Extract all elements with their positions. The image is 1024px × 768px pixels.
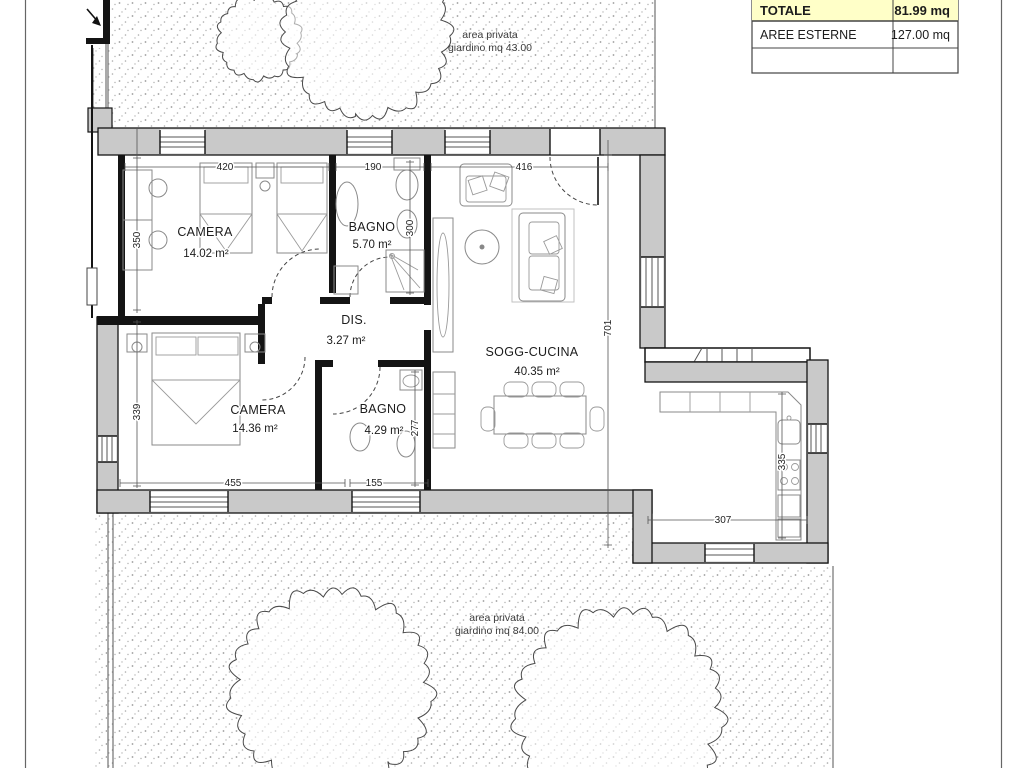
bottom-garden-label-line1: area privata — [469, 612, 525, 624]
nightstand — [256, 163, 274, 178]
dim-bagno1-width: 190 — [365, 162, 382, 173]
window — [808, 424, 827, 453]
dim-camera1-height: 350 — [132, 231, 143, 248]
window — [150, 491, 228, 512]
washing-machine — [334, 266, 358, 294]
dimension-lines: 420 190 416 350 339 300 701 455 155 277 … — [120, 128, 807, 548]
room-label-bagno2: BAGNO — [360, 402, 407, 416]
door-arc-camera2 — [262, 357, 305, 400]
interior-walls — [97, 155, 431, 490]
dim-camera2-height: 339 — [132, 403, 143, 420]
summary-row-totale-label: TOTALE — [760, 3, 811, 18]
summary-table: TOTALE 81.99 mq AREE ESTERNE 127.00 mq — [752, 0, 958, 73]
summary-row-totale-value: 81.99 mq — [894, 3, 950, 18]
armchair — [460, 164, 512, 206]
shower — [386, 250, 424, 292]
room-area-bagno1: 5.70 m² — [353, 239, 392, 251]
door-arc-camera1 — [272, 249, 320, 297]
window — [160, 130, 205, 155]
window — [641, 257, 664, 307]
dim-bagno2-width: 155 — [366, 478, 383, 489]
room-label-dis: DIS. — [341, 313, 367, 327]
dim-camera2-width: 455 — [225, 478, 242, 489]
window — [352, 491, 420, 512]
room-label-bagno1: BAGNO — [349, 220, 396, 234]
room-area-camera1: 14.02 m² — [183, 248, 229, 260]
room-label-camera2: CAMERA — [230, 403, 286, 417]
toilet — [396, 170, 418, 200]
window — [705, 544, 754, 562]
single-bed — [277, 163, 327, 253]
kitchen-unit — [778, 495, 800, 517]
soggiorno-furniture — [433, 164, 604, 448]
single-bed — [200, 163, 252, 253]
room-label-camera1: CAMERA — [177, 225, 233, 239]
window — [98, 436, 117, 462]
lamp — [260, 181, 270, 191]
dim-kitchen-height: 335 — [777, 453, 788, 470]
room-label-soggiorno: SOGG-CUCINA — [486, 345, 579, 359]
double-bed — [152, 333, 240, 445]
sofa — [519, 213, 565, 301]
summary-row-esterne-value: 127.00 mq — [891, 28, 950, 42]
entry-opening — [550, 129, 600, 155]
kitchen-unit — [778, 519, 800, 537]
kitchen-north-wall — [645, 348, 810, 362]
window — [445, 130, 490, 155]
cabinet — [433, 218, 453, 352]
kitchen-sink — [778, 416, 800, 444]
room-area-camera2: 14.36 m² — [232, 423, 278, 435]
dim-soggiorno-height: 701 — [603, 319, 614, 336]
door-arc-bagno1 — [350, 257, 390, 297]
dim-soggiorno-width: 416 — [516, 162, 533, 173]
bottom-garden-label-line2: giardino mq 84.00 — [455, 625, 539, 637]
window — [87, 268, 97, 305]
dim-bagno1-height: 300 — [405, 219, 416, 236]
dim-kitchen-width: 307 — [715, 515, 732, 526]
room-area-soggiorno: 40.35 m² — [514, 366, 560, 378]
cabinet — [433, 372, 455, 448]
floor-plan-canvas: area privata giardino mq 43.00 area priv… — [0, 0, 1024, 768]
room-area-dis: 3.27 m² — [327, 335, 366, 347]
dining-table — [481, 382, 604, 448]
window — [347, 130, 392, 155]
top-garden: area privata giardino mq 43.00 — [93, 0, 655, 128]
top-garden-label-line2: giardino mq 43.00 — [448, 42, 532, 54]
room-area-bagno2: 4.29 m² — [365, 425, 404, 437]
door-arc-entry — [550, 157, 598, 205]
toilet-tank — [394, 158, 420, 170]
dim-camera1-width: 420 — [217, 162, 234, 173]
summary-row-esterne-label: AREE ESTERNE — [760, 28, 857, 42]
top-garden-label-line1: area privata — [462, 29, 518, 41]
dim-bagno2-height: 277 — [410, 419, 421, 436]
